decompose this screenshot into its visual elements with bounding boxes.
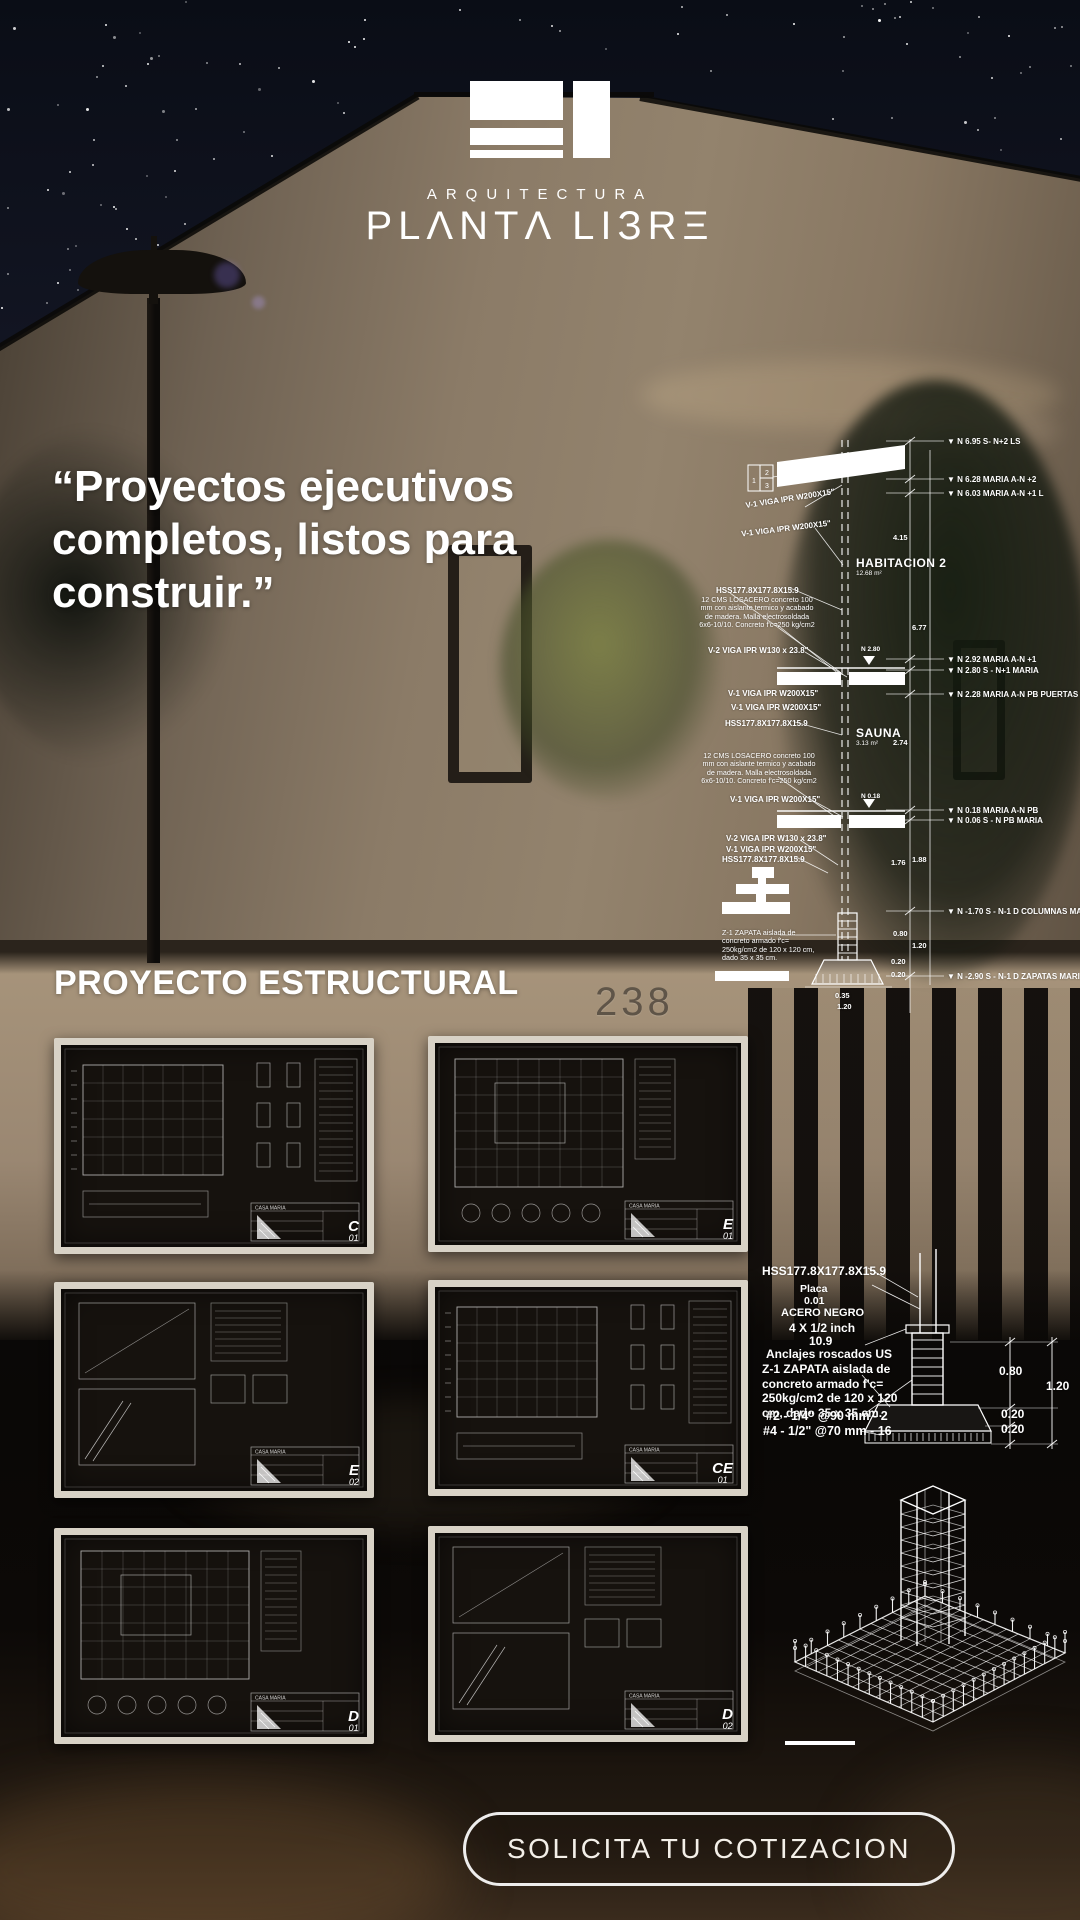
star [677,33,679,35]
star [69,171,71,173]
star [278,67,280,69]
star [551,25,553,27]
star [1060,138,1062,140]
star [559,30,561,32]
star [57,282,59,284]
star [77,289,79,291]
star [46,302,48,304]
star [459,9,461,11]
star [174,170,176,172]
star [176,139,178,141]
star [7,273,9,275]
star [978,16,980,18]
star [113,36,116,39]
street-lamp-pole [147,298,160,963]
star [964,121,967,124]
star [726,14,728,16]
star [337,102,339,104]
star [243,131,245,133]
star [258,88,261,91]
star [343,112,345,114]
star [1061,26,1063,28]
star [994,117,996,119]
star [364,19,366,21]
logo-bar-mid [470,128,563,145]
star [891,117,893,119]
quote-line: “Proyectos ejecutivos [52,460,652,513]
star [832,118,834,120]
star [1029,66,1031,68]
star [125,85,127,87]
lens-flare [252,296,265,309]
star [843,36,845,38]
quote-text: “Proyectos ejecutivos completos, listos … [52,460,652,619]
star [86,108,89,111]
star [206,62,208,64]
street-lamp-stem [149,288,158,304]
star [13,27,16,30]
quote-line: construir.” [52,566,652,619]
star [878,19,881,22]
star [312,80,315,83]
star [967,32,969,34]
logo-bar-vertical [573,81,610,158]
star [213,158,215,160]
brand-logo-icon [470,81,610,159]
house-number: 238 [595,980,674,1025]
star [932,7,934,9]
star [1000,149,1002,151]
car-reflection [180,1400,660,1530]
star [710,70,712,72]
star [139,32,141,34]
star [1070,65,1072,67]
logo-bar-top [470,81,563,120]
star [239,63,241,65]
quote-line: completos, listos para [52,513,652,566]
star [1008,35,1010,37]
star [158,55,160,57]
star [681,6,683,8]
star [959,56,961,58]
star [977,129,979,131]
star [872,8,874,10]
cta-label: SOLICITA TU COTIZACION [507,1833,911,1865]
star [605,48,607,50]
star [195,108,197,110]
star [1,307,3,309]
star [991,77,993,79]
star [147,63,149,65]
star [271,155,273,157]
star [146,175,148,177]
star [910,1,912,3]
lens-flare [214,262,240,288]
flyer-canvas: 238 ARQUITECTURA PLΛNTΛ LIЗRΞ “Proyectos… [0,0,1080,1920]
star [793,23,795,25]
star [894,17,896,19]
star [7,108,10,111]
star [899,16,901,18]
cta-button[interactable]: SOLICITA TU COTIZACION [463,1812,955,1886]
star [354,46,356,48]
star [150,57,153,60]
star [348,41,350,43]
star [906,43,908,45]
star [162,110,165,113]
star [842,70,844,72]
star [102,65,104,67]
star [105,24,107,26]
star [1020,72,1022,74]
logo-bar-thin [470,150,563,158]
star [69,269,71,271]
star [185,1,187,3]
star [1054,27,1056,29]
star [861,5,863,7]
star [92,164,94,166]
star [93,139,95,141]
star [884,3,886,5]
section-heading: PROYECTO ESTRUCTURAL [54,964,519,1003]
star [57,104,59,106]
star [519,19,521,21]
tree-foliage-dark [780,380,1080,980]
star [96,76,98,78]
star [363,38,365,40]
brand-tagline: ARQUITECTURA [0,186,1080,203]
brand-name: PLΛNTΛ LIЗRΞ [0,204,1080,249]
